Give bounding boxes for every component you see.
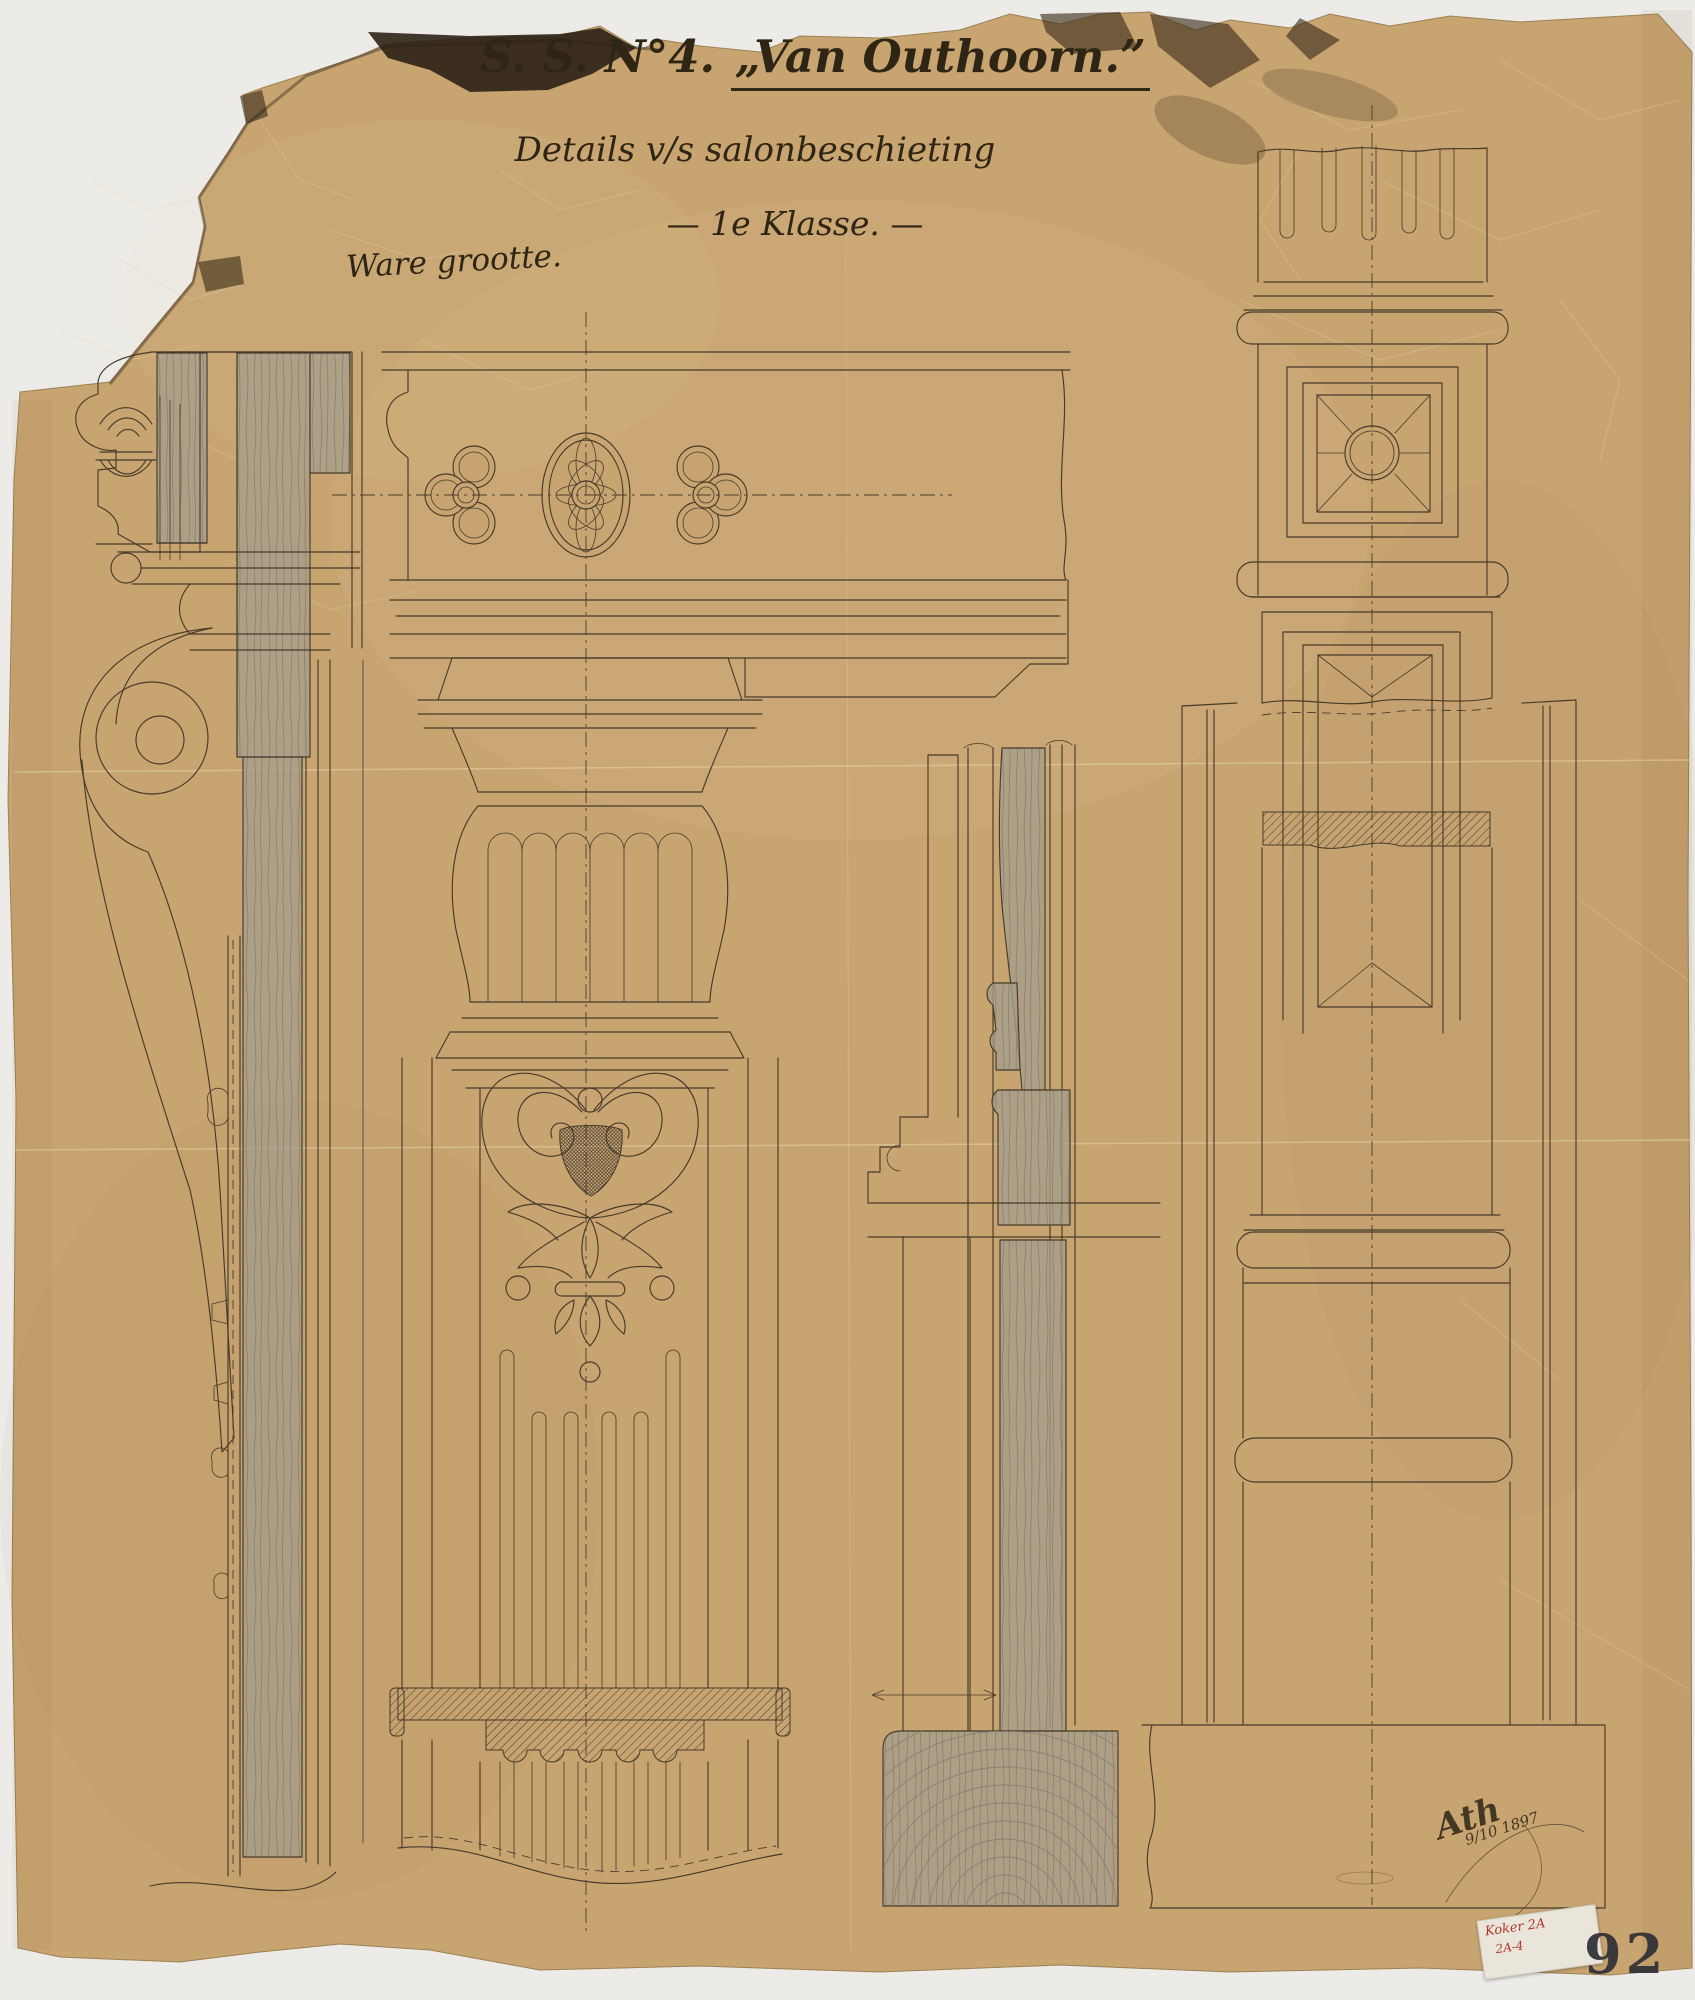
section-cut-band xyxy=(398,1688,782,1720)
section-cut-band xyxy=(1263,812,1490,848)
drawing-canvas xyxy=(0,0,1695,2000)
sheet-number-stamp: 92 xyxy=(1584,1922,1667,1986)
sheet-title: S. S. N°4. „Van Outhoorn.” xyxy=(450,30,1180,91)
class-line: — 1e Klasse. — xyxy=(585,204,1005,243)
scanned-drawing-sheet: S. S. N°4. „Van Outhoorn.” Details v/s s… xyxy=(0,0,1695,2000)
title-series: S. S. N°4. xyxy=(480,30,715,83)
sheet-subtitle: Details v/s salonbeschieting xyxy=(505,130,1005,170)
title-ship-name: „Van Outhoorn.” xyxy=(731,30,1150,91)
